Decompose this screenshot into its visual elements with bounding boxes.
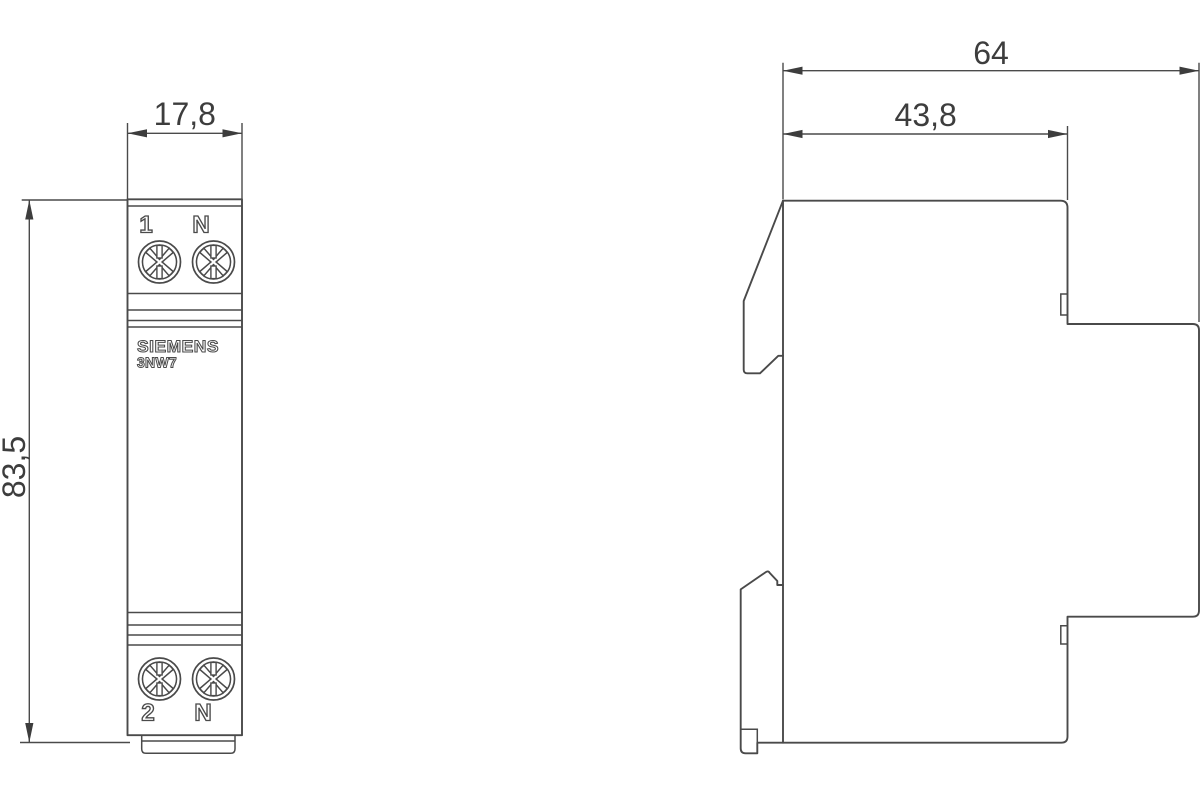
side-view	[741, 201, 1199, 754]
dim-arrow-icon	[1180, 67, 1200, 75]
terminal-label-2: 2	[141, 700, 154, 727]
terminal-screw-icon	[193, 658, 235, 700]
front-view: 1 N 2 N SIEMENS 3NW7	[128, 199, 243, 753]
terminal-screw-icon	[193, 241, 235, 283]
dim-value-width: 17,8	[154, 96, 216, 132]
dim-arrow-icon	[223, 129, 243, 137]
dimension-height-83-5: 83,5	[0, 200, 130, 743]
dim-arrow-icon	[128, 129, 148, 137]
terminal-screw-icon	[139, 658, 181, 700]
side-profile-outline	[741, 201, 1199, 754]
dim-value-height: 83,5	[0, 436, 32, 498]
terminal-label-n-top: N	[192, 212, 209, 239]
model-text: 3NW7	[137, 356, 177, 372]
dim-value-depth: 64	[973, 35, 1009, 71]
dim-arrow-icon	[1048, 130, 1068, 138]
dim-arrow-icon	[783, 67, 803, 75]
brand-text: SIEMENS	[137, 337, 219, 356]
dim-value-upper-depth: 43,8	[895, 97, 957, 133]
dimension-width-17-8: 17,8	[128, 96, 243, 199]
dimension-upper-depth-43-8: 43,8	[783, 97, 1068, 200]
dimension-drawing: 1 N 2 N SIEMENS 3NW7 17,8 83,5	[0, 0, 1200, 800]
din-rail-tab-lower	[1061, 626, 1068, 644]
terminal-label-1: 1	[139, 212, 152, 239]
terminal-screw-icon	[139, 241, 181, 283]
dim-arrow-icon	[25, 200, 33, 220]
drawing-svg: 1 N 2 N SIEMENS 3NW7 17,8 83,5	[0, 0, 1200, 800]
terminal-label-n-bottom: N	[194, 700, 211, 727]
dim-arrow-icon	[783, 130, 803, 138]
dimension-depth-64: 64	[783, 35, 1199, 322]
din-clip-foot	[142, 735, 235, 753]
upper-flap-outline	[744, 201, 783, 374]
din-rail-tab-upper	[1061, 294, 1068, 315]
din-clip-slider	[741, 729, 758, 742]
dim-arrow-icon	[25, 723, 33, 743]
